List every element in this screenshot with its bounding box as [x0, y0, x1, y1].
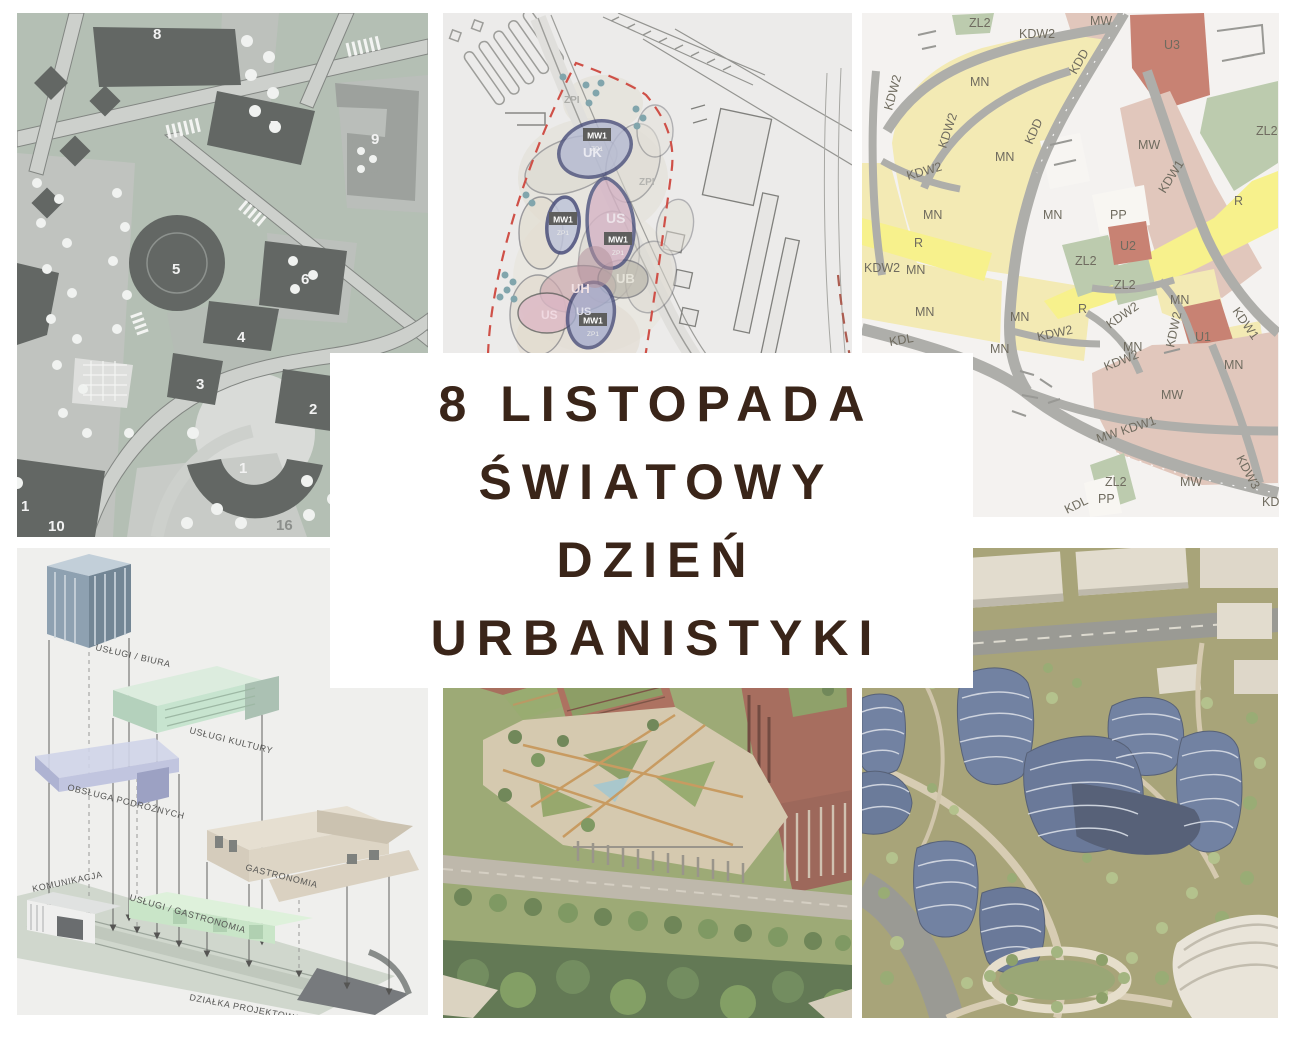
zoning-label: KDW2: [1019, 27, 1055, 41]
title-card: 8 LISTOPADA ŚWIATOWY DZIEŃ URBANISTYKI: [330, 353, 973, 688]
loop-path: [984, 946, 1130, 1013]
zoning-label: MN: [1224, 358, 1243, 372]
zoning-label: ZL2: [969, 16, 991, 30]
building-number: 6: [301, 271, 309, 288]
building-number: 7: [270, 118, 278, 135]
title-line-2: ŚWIATOWY: [469, 443, 835, 521]
zoning-label: MW: [1180, 475, 1202, 489]
zoning-label: U1: [1195, 330, 1211, 344]
building-number: 9: [371, 131, 379, 148]
zone-label: UH: [571, 281, 590, 296]
zoning-label: R: [1078, 302, 1087, 316]
zone-label: US: [576, 306, 591, 318]
building-number: 4: [237, 329, 246, 346]
building-number: 1: [239, 460, 247, 477]
zoning-label: MN: [995, 150, 1014, 164]
zoning-label: MN: [1010, 310, 1029, 324]
zoning-label: U2: [1120, 239, 1136, 253]
zone-label: UK: [583, 145, 602, 160]
zoning-label: KDW2: [864, 261, 900, 275]
zoning-label: MN: [970, 75, 989, 89]
svg-text:ZP1: ZP1: [612, 250, 624, 257]
zoning-label: PP: [1110, 208, 1127, 222]
zoning-label: MN: [923, 208, 942, 222]
building-number: 2: [309, 401, 317, 418]
zoning-label: ZL2: [1256, 124, 1278, 138]
zoning-label: ZL2: [1105, 475, 1127, 489]
zone-label: UB: [616, 271, 635, 286]
zoning-label: MN: [990, 342, 1009, 356]
building-number: 8: [153, 26, 161, 43]
urbanism-day-poster: 87956432111016: [0, 0, 1298, 1038]
zoning-label: MN: [915, 305, 934, 319]
zoning-label: R: [914, 236, 923, 250]
zoning-label: MW: [1138, 138, 1160, 152]
building-number: 5: [172, 261, 180, 278]
zoning-label: U3: [1164, 38, 1180, 52]
zone-label: ZPI: [564, 95, 580, 106]
svg-text:MW1: MW1: [587, 131, 607, 141]
zone-label: ZPI: [639, 177, 655, 188]
building-number: 3: [196, 376, 204, 393]
zoning-label: ZL2: [1114, 278, 1136, 292]
title-line-3: DZIEŃ: [547, 521, 757, 599]
zoning-label: MN: [1170, 293, 1189, 307]
svg-text:ZP1: ZP1: [557, 230, 569, 237]
zoning-label: KD: [1262, 495, 1279, 509]
svg-text:ZP1: ZP1: [587, 331, 599, 338]
zoning-label: MN: [906, 263, 925, 277]
zoning-label: MW: [1090, 14, 1112, 28]
title-line-1: 8 LISTOPADA: [429, 365, 875, 443]
zoning-label: ZL2: [1075, 254, 1097, 268]
building-number: 1: [21, 498, 29, 515]
tower-building: [47, 554, 131, 648]
building-number: 16: [276, 517, 293, 534]
zone-label: US: [606, 210, 625, 226]
zoning-label: R: [1234, 194, 1243, 208]
zoning-label: MW: [1161, 388, 1183, 402]
zoning-label: MN: [1043, 208, 1062, 222]
svg-text:MW1: MW1: [608, 235, 628, 245]
zoning-label: PP: [1098, 492, 1115, 506]
svg-text:MW1: MW1: [553, 215, 573, 225]
title-line-4: URBANISTYKI: [421, 599, 883, 677]
building-number: 10: [48, 518, 65, 535]
zone-label: US: [541, 308, 558, 322]
